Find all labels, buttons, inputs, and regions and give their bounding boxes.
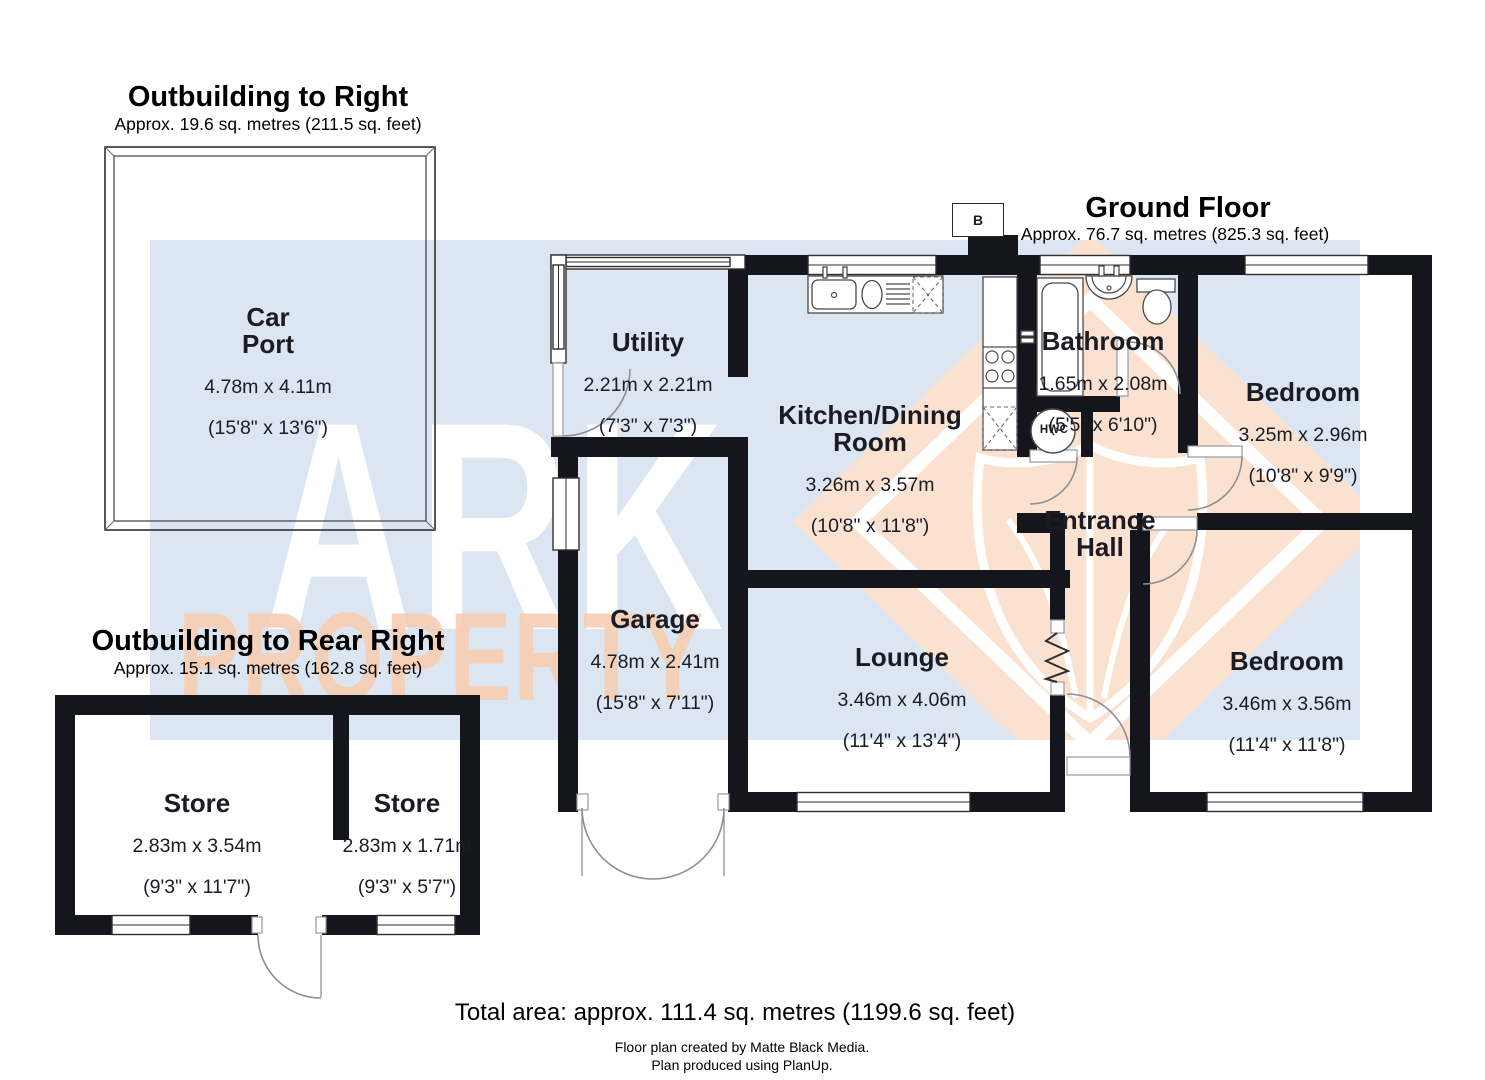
room-dims-metric: 3.46m x 4.06m	[838, 689, 967, 712]
garage-right-wall	[728, 437, 748, 812]
room-dims-metric: 3.25m x 2.96m	[1239, 424, 1368, 447]
room-name: Bedroom	[1239, 379, 1368, 406]
room-name: Store	[133, 790, 262, 817]
room-dims-metric: 2.21m x 2.21m	[584, 374, 713, 397]
garage-double-doors	[577, 794, 729, 879]
room-label-car-port: Car Port 4.78m x 4.11m (15'8" x 13'6")	[204, 286, 332, 458]
room-name: Bathroom	[1039, 328, 1168, 355]
room-dims-metric: 2.83m x 1.71m	[343, 835, 472, 858]
bedroom-front-window	[1245, 256, 1368, 275]
total-area-text: Total area: approx. 111.4 sq. metres (11…	[455, 999, 1015, 1027]
outbuilding-rear-subtitle: Approx. 15.1 sq. metres (162.8 sq. feet)	[114, 660, 422, 678]
room-dims-imperial: (9'3" x 11'7")	[133, 876, 262, 899]
floor-plan-drawing: ARK PROPERTY	[0, 0, 1485, 1080]
kitchen-counter-column	[983, 277, 1017, 450]
store-window	[112, 916, 190, 935]
room-dims-metric: 2.83m x 3.54m	[133, 835, 262, 858]
room-label-utility: Utility 2.21m x 2.21m (7'3" x 7'3")	[584, 311, 713, 456]
room-label-entrance-hall: Entrance Hall	[1044, 489, 1155, 579]
room-name: Kitchen/Dining Room	[778, 402, 961, 456]
hwc-marker-label: HWC	[1031, 417, 1077, 443]
bedroom-rear-window	[1207, 793, 1363, 812]
room-dims-imperial: (11'4" x 13'4")	[838, 730, 967, 753]
room-dims-imperial: (15'8" x 13'6")	[204, 417, 332, 440]
room-dims-imperial: (9'3" x 5'7")	[343, 876, 472, 899]
room-label-store-small: Store 2.83m x 1.71m (9'3" x 5'7")	[343, 772, 472, 917]
outbuilding-right-title: Outbuilding to Right	[128, 83, 408, 112]
room-label-store-large: Store 2.83m x 3.54m (9'3" x 11'7")	[133, 772, 262, 917]
credit-line-1: Floor plan created by Matte Black Media.	[615, 1039, 869, 1055]
credit-line-2: Plan produced using PlanUp.	[651, 1057, 832, 1073]
ground-floor-title: Ground Floor	[1085, 194, 1270, 223]
room-label-garage: Garage 4.78m x 2.41m (15'8" x 7'11")	[591, 588, 720, 733]
store-door	[252, 917, 326, 998]
room-label-lounge: Lounge 3.46m x 4.06m (11'4" x 13'4")	[838, 626, 967, 771]
room-name: Store	[343, 790, 472, 817]
room-dims-imperial: (7'3" x 7'3")	[584, 415, 713, 438]
room-dims-imperial: (11'4" x 11'8")	[1223, 734, 1352, 757]
room-name: Bedroom	[1223, 648, 1352, 675]
utility-kitchen-wall	[728, 255, 748, 377]
room-label-kitchen-dining: Kitchen/Dining Room 3.26m x 3.57m (10'8"…	[778, 384, 961, 556]
room-dims-metric: 1.65m x 2.08m	[1039, 373, 1168, 396]
room-name: Car Port	[204, 304, 332, 358]
boiler-marker: B	[952, 203, 1004, 237]
floor-plan-page: ARK PROPERTY	[0, 0, 1485, 1080]
room-dims-imperial: (10'8" x 11'8")	[778, 515, 961, 538]
ground-floor-subtitle: Approx. 76.7 sq. metres (825.3 sq. feet)	[1021, 226, 1329, 244]
chimney-block	[968, 235, 1018, 257]
room-dims-metric: 3.46m x 3.56m	[1223, 693, 1352, 716]
kitchen-lounge-wall	[748, 570, 1070, 588]
room-name: Garage	[591, 606, 720, 633]
room-dims-imperial: (15'8" x 7'11")	[591, 692, 720, 715]
room-label-bedroom-rear: Bedroom 3.46m x 3.56m (11'4" x 11'8")	[1223, 630, 1352, 775]
outbuilding-right-subtitle: Approx. 19.6 sq. metres (211.5 sq. feet)	[114, 116, 421, 134]
room-dims-metric: 3.26m x 3.57m	[778, 474, 961, 497]
room-dims-metric: 4.78m x 4.11m	[204, 376, 332, 399]
store-window	[377, 916, 455, 935]
room-name: Utility	[584, 329, 713, 356]
garage-window	[553, 478, 579, 550]
room-dims-imperial: (10'8" x 9'9")	[1239, 465, 1368, 488]
room-dims-metric: 4.78m x 2.41m	[591, 651, 720, 674]
bathroom-bedroom-wall	[1178, 275, 1198, 453]
room-name: Entrance Hall	[1044, 507, 1155, 561]
lounge-window	[797, 793, 970, 812]
room-label-bedroom-front: Bedroom 3.25m x 2.96m (10'8" x 9'9")	[1239, 361, 1368, 506]
room-name: Lounge	[838, 644, 967, 671]
outbuilding-rear-title: Outbuilding to Rear Right	[92, 627, 445, 656]
bedroom-divider-wall	[1197, 513, 1413, 530]
